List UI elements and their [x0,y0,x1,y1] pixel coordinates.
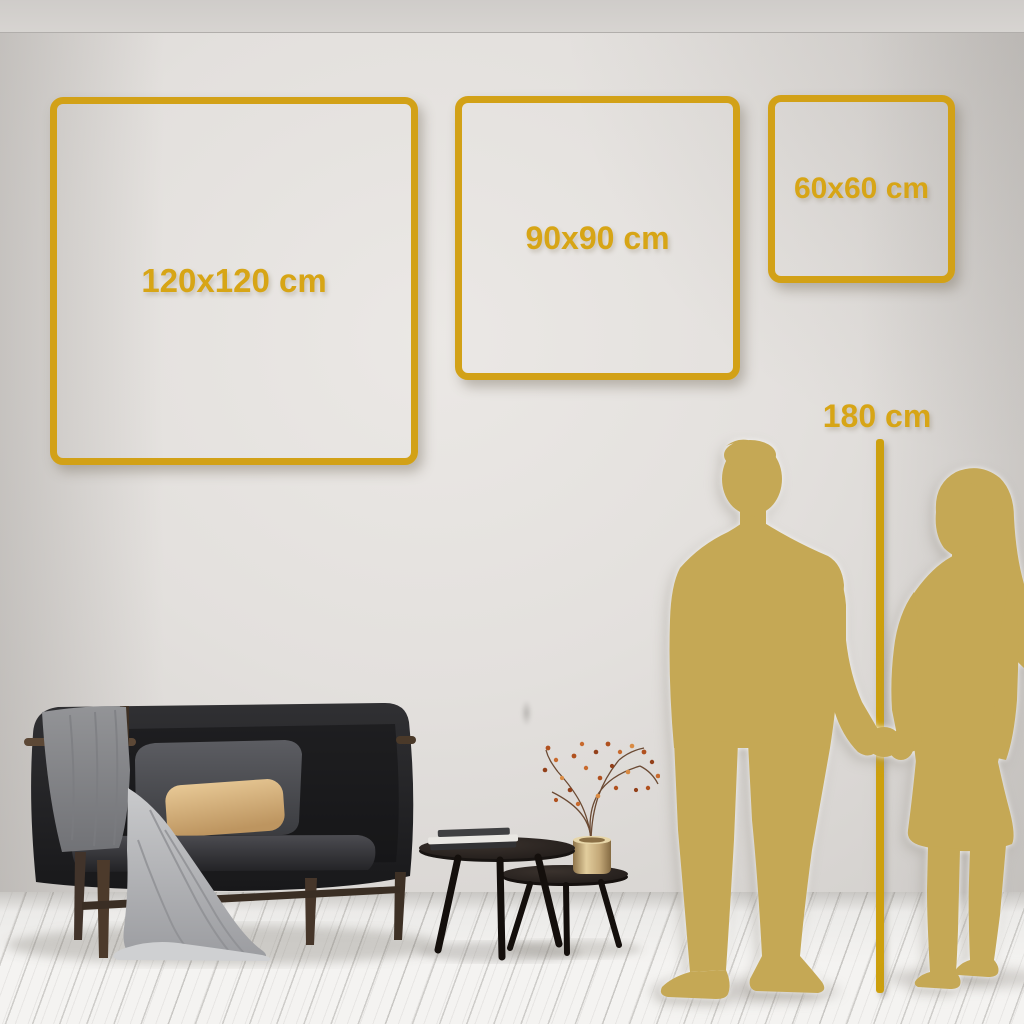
size-frame-120x120: 120x120 cm [50,97,418,465]
man-silhouette [661,440,901,999]
books-stack [428,827,519,850]
sofa-leg [74,852,86,940]
woman-silhouette [888,468,1024,989]
size-frame-60x60: 60x60 cm [768,95,955,283]
sofa-leg [394,872,406,940]
ceiling-strip [0,0,1024,33]
wall-smudge [521,700,532,726]
size-frame-90x90: 90x90 cm [455,96,740,380]
sofa [0,680,460,990]
brass-vase [573,836,611,874]
couple-silhouette [640,430,1024,1010]
pillow-beige [164,778,285,838]
size-label-60x60: 60x60 cm [794,172,929,206]
size-label-90x90: 90x90 cm [525,220,669,257]
coffee-tables [410,730,660,970]
size-label-120x120: 120x120 cm [141,262,326,300]
size-guide-scene: 120x120 cm 90x90 cm 60x60 cm [0,0,1024,1024]
